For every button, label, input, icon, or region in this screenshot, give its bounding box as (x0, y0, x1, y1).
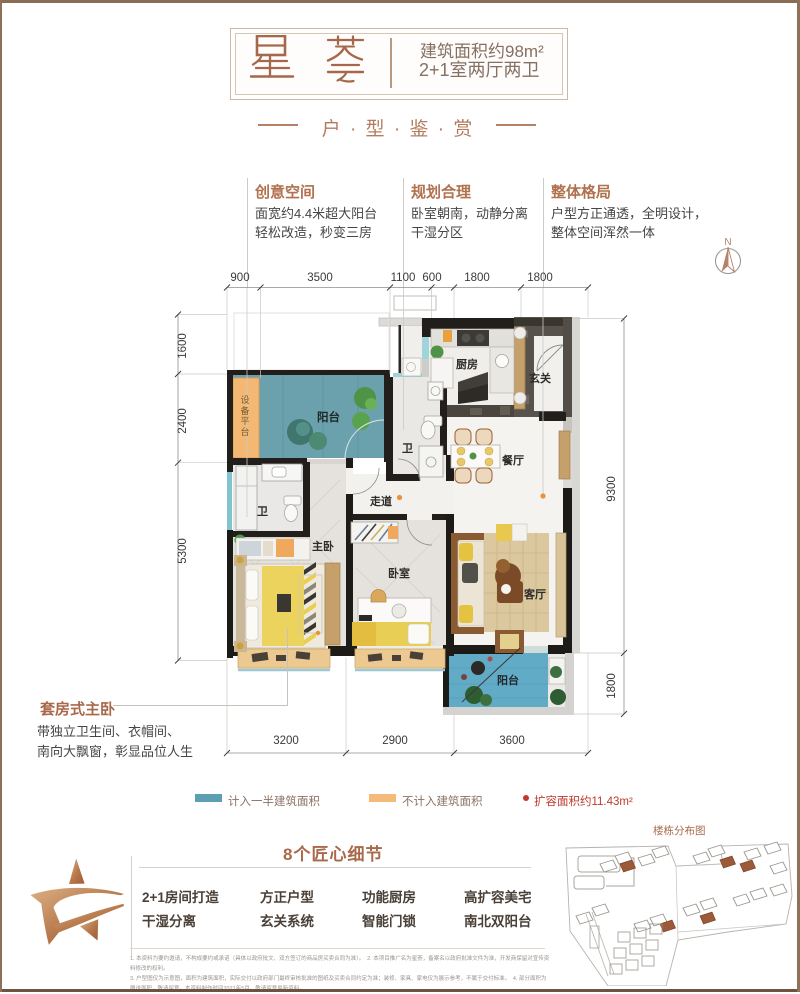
svg-text:5300: 5300 (177, 538, 189, 564)
svg-text:1800: 1800 (464, 272, 490, 284)
svg-text:2400: 2400 (177, 408, 189, 434)
svg-text:1800: 1800 (606, 673, 618, 699)
svg-text:1800: 1800 (527, 272, 553, 284)
svg-text:1100: 1100 (391, 272, 416, 284)
svg-text:600: 600 (422, 272, 441, 284)
svg-text:3500: 3500 (307, 272, 333, 284)
svg-text:N: N (724, 237, 731, 248)
svg-text:900: 900 (230, 272, 249, 284)
svg-text:3600: 3600 (499, 735, 525, 747)
svg-text:3200: 3200 (273, 735, 299, 747)
svg-text:2900: 2900 (382, 735, 408, 747)
svg-text:9300: 9300 (606, 476, 618, 502)
svg-text:1600: 1600 (177, 333, 189, 359)
